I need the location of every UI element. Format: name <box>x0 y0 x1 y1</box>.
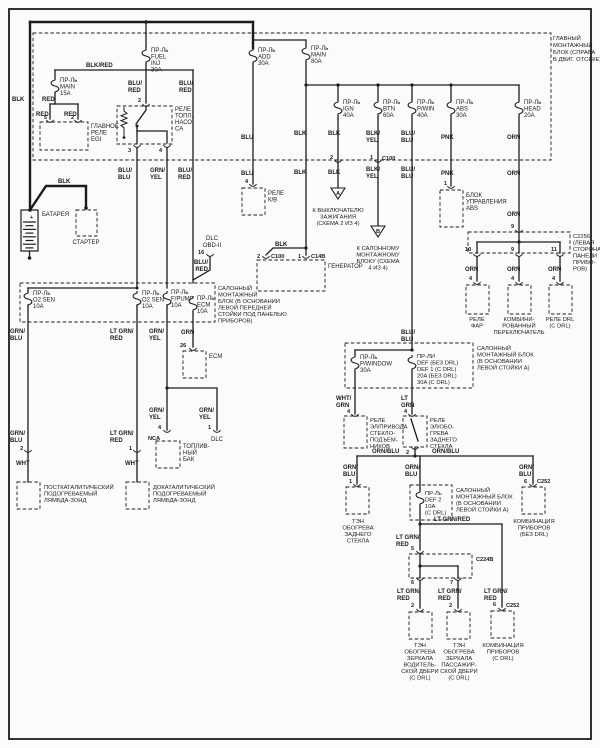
relay-switch-blade <box>411 419 418 441</box>
pin-label: 2 <box>138 98 141 104</box>
pin-label: 2 <box>406 450 409 456</box>
wire-label: BLK <box>275 242 288 248</box>
wire-label: LT GRN/ <box>110 431 134 437</box>
pin-label: 2 <box>20 446 23 452</box>
component-label: ТОПЛ. <box>175 114 193 120</box>
fuse-icon <box>515 100 523 116</box>
power-window-relay-circuit: WHT/ GRN 4 РЕЛЕ ЭЛ/ПРИВОДА СТЕКЛО- ПОДЪЕ… <box>336 371 408 450</box>
wire-label: BLK <box>58 179 71 185</box>
component-label: ЗАДНЕГО <box>430 438 457 444</box>
wire-label: BLU <box>343 472 355 478</box>
abs-unit-box <box>440 190 463 227</box>
component-label: ОБОГРЕВА <box>342 526 373 532</box>
component-label: РОВАННЫЙ <box>502 322 535 330</box>
connector-label: ПАНЕЛИ <box>573 254 597 260</box>
fuse-label: ПР-ЛИ <box>417 354 435 360</box>
connector-label: СТОРОНА <box>573 247 600 253</box>
component-label: ПАССАЖИР- <box>441 663 476 669</box>
cabin-fusebox-3: САЛОННЫЙ МОНТАЖНЫЙ БЛОК (В ОСНОВАНИИ ЛЕВ… <box>410 485 513 520</box>
pin-icon <box>515 254 522 256</box>
fuse-label: ABS <box>456 107 468 113</box>
fuse-label: ПР-Ль <box>171 290 188 296</box>
fuse-label: MAIN <box>60 85 75 91</box>
component-label: ГЕНЕРАТОР <box>328 264 363 270</box>
wire-label: ORN <box>507 212 520 218</box>
fuse-label: ПР-Ль <box>456 100 473 106</box>
pin-label: 11 <box>551 247 557 253</box>
connector-label: ПРИБО- <box>573 260 595 266</box>
component-label: ОБОГРЕВА <box>404 650 435 656</box>
fuse-icon <box>142 48 150 64</box>
cabin-fusebox1-label: МОНТАЖНЫЙ <box>218 291 258 299</box>
generator-box <box>257 260 325 291</box>
fuse-label: (С DRL) <box>425 511 446 517</box>
component-label: ЗЕРКАЛА <box>407 656 433 662</box>
cabin-fusebox1-label: ПРИБОРОВ) <box>218 319 253 325</box>
cabin-fusebox2-label: САЛОННЫЙ <box>477 344 511 352</box>
off-page-connector-letter: B <box>376 229 380 235</box>
wire-label: BLU <box>401 138 413 144</box>
pin-label: 6 <box>524 479 527 485</box>
wire-label: RED <box>195 267 208 273</box>
fuse-label: P/WINDOW <box>360 362 392 368</box>
pin-label: 2 <box>411 603 414 609</box>
rear-glass-heater-box <box>346 487 369 514</box>
fuse-label: O2 SEN <box>33 298 55 304</box>
fuse-label: 30A <box>456 113 467 119</box>
main-fusebox-label: В ДВИГ. ОТСЕКЕ) <box>553 57 600 63</box>
pin-icon <box>416 609 423 611</box>
wire-label: ORN/BLU <box>432 449 459 455</box>
pin-label: 1 <box>444 181 447 187</box>
pin-label: 1 <box>129 446 132 452</box>
fuse-label: P/WIN <box>417 107 434 113</box>
component-label: РЕЛЕ <box>91 131 107 137</box>
component-label: КОМБИНИ- <box>504 317 535 323</box>
fuse-label: O2 SEN <box>142 298 164 304</box>
pin-label: 4 <box>511 276 515 282</box>
component-label: РЕЛЕ <box>268 191 284 197</box>
component-label: КОМБИНАЦИЯ <box>513 519 554 525</box>
connector-label: (ЛЕВАЯ <box>573 241 594 247</box>
egi-relay-box <box>40 122 88 150</box>
component-label: ЗЕРКАЛА <box>446 656 472 662</box>
pin-label: 4 <box>469 276 473 282</box>
wire-label: WHT <box>16 461 30 467</box>
wire-label: BLU/ <box>401 330 415 336</box>
fuse-label: ПР-Ль <box>524 100 541 106</box>
abs-circuit: PNK PNK 1 БЛОК УПРАВЛЕНИЯ ABS <box>440 116 507 227</box>
fuse-label: 10A <box>425 504 435 510</box>
wire-label: YEL <box>149 336 161 342</box>
pin-icon <box>515 282 522 284</box>
pin-icon <box>133 145 140 147</box>
wire-label: BLK <box>294 170 307 176</box>
component-label: (С DRL) <box>492 656 513 662</box>
fuse-label: ADD <box>258 55 271 61</box>
wire-label: LT GRN/ <box>438 589 462 595</box>
pin-icon <box>556 254 563 256</box>
wire-label: RED <box>179 88 192 94</box>
fuse-label: DEF 1 (С DRL) <box>417 367 456 373</box>
wire-label: BLK/ <box>366 131 380 137</box>
fuse-label: 30A <box>360 368 371 374</box>
fuse-label: ПР-Ль <box>60 78 77 84</box>
wire-label: BLU <box>401 174 413 180</box>
headlight-relay-box <box>466 285 489 314</box>
pin-label: 26 <box>180 343 186 349</box>
component-label: ОБОГРЕВА <box>443 650 474 656</box>
component-label: ПРИБОРОВ <box>518 526 551 532</box>
component-label: OBD-II <box>203 243 222 249</box>
wire-label: YEL <box>366 174 378 180</box>
wire-label: RED <box>110 336 123 342</box>
pin-label: 4 <box>552 276 556 282</box>
combo-switch-box <box>508 285 531 314</box>
page-border <box>9 9 591 739</box>
wire-label: ORN/BLU <box>372 449 399 455</box>
note-label: К САЛОННОМУ <box>357 246 400 252</box>
fuse-label: INJ <box>151 61 160 67</box>
head-drl-circuit: ORN ORN ORN 9 C2256 (ЛЕВАЯ СТОРОНА ПАНЕЛ… <box>465 116 600 336</box>
starter-box <box>76 210 97 236</box>
connector-label: C252 <box>537 479 550 485</box>
wire-label: GRN <box>401 403 414 409</box>
pin-label: 4 <box>159 148 163 154</box>
wire-label: ORN/ <box>519 465 534 471</box>
cabin-fusebox2-label: (В ОСНОВАНИИ <box>477 359 522 365</box>
fuse-icon <box>447 100 455 116</box>
relay-switch-blade <box>136 106 146 124</box>
cabin-fusebox-2: САЛОННЫЙ МОНТАЖНЫЙ БЛОК (В ОСНОВАНИИ ЛЕВ… <box>345 343 534 388</box>
component-label: (С DRL) <box>549 324 570 330</box>
fuse-label: 30A <box>258 61 269 67</box>
component-label: НАСО- <box>175 120 194 126</box>
wire-label: BLK/RED <box>86 63 113 69</box>
pin-icon <box>262 256 269 258</box>
fuse-label: 30A (С DRL) <box>417 380 450 386</box>
pin-icon <box>163 145 170 147</box>
wire-label: GRN/ <box>149 408 164 414</box>
component-label: ГРЕВА <box>430 431 449 437</box>
wire-label: GRN/ <box>150 168 165 174</box>
off-page-connector-letter: A <box>336 191 340 197</box>
wire-label: YEL <box>199 415 211 421</box>
pin-label: 2 <box>71 115 74 121</box>
component-label: ПОДОГРЕВАЕМЫЙ <box>44 490 97 498</box>
cluster-no-drl-box <box>522 487 545 514</box>
fuse-label: 60A <box>383 113 394 119</box>
fuse-label: ПР-Ль <box>417 100 434 106</box>
cabin-fusebox1-label: СТОЙКИ ПОД ПАНЕЛЬЮ <box>218 310 287 318</box>
wire-label: BLU/ <box>401 131 415 137</box>
wire-label: YEL <box>150 175 162 181</box>
cabin-fusebox3-label: ЛЕВОЙ СТОЙКИ A) <box>456 506 509 514</box>
wire-label: BLU <box>241 171 253 177</box>
wire-label: RED <box>438 596 451 602</box>
fuse-label: 40A <box>417 113 428 119</box>
fuel-pump-relay-circuit: BLU/ RED BLU/ RED 2 РЕЛЕ ТОПЛ. НАСО- СА … <box>117 64 194 288</box>
cabin-fusebox1-label: ЛЕВОЙ ПЕРЕДНЕЙ <box>218 304 272 312</box>
component-label: ЗАДНЕГО <box>345 532 372 538</box>
pin-label: 3 <box>128 148 131 154</box>
note-label: 4 ИЗ 4) <box>368 266 387 272</box>
fuse-label: ПР-Ль <box>258 48 275 54</box>
cabin-fusebox3-label: (В ОСНОВАНИИ <box>456 501 501 507</box>
wire-label: ORN/ <box>405 465 420 471</box>
main-fusebox-label: БЛОК (СПРАВА <box>553 50 595 56</box>
pin-label: 9 <box>511 224 514 230</box>
component-label: СКОЙ ДВЕРИ <box>440 667 477 675</box>
connector-label: C2256 <box>573 234 590 240</box>
fuse-label: ПР-Ль <box>197 296 214 302</box>
pin-label: 2 <box>257 254 260 260</box>
component-label: ТОПЛИВ- <box>183 444 210 450</box>
wire-label: GRN/ <box>10 431 25 437</box>
component-label: РЕЛЕ DRL <box>546 317 575 323</box>
wire-label: PNK <box>441 135 454 141</box>
fuse-icon <box>351 355 359 371</box>
pw-relay-box <box>344 416 367 448</box>
btn-circuit: BLK/ YEL BLK/ YEL 1 C100 B К САЛОННОМУ М… <box>356 116 400 272</box>
c224b-mirror-heaters: C224B 6 7 LT GRN/ RED LT GRN/ RED 2 2 ТЭ… <box>397 554 493 682</box>
battery-plus-label: + <box>30 215 34 221</box>
lambda-pre-box <box>126 482 149 509</box>
fuse-label: ПР-Ль <box>360 355 377 361</box>
fuse-label: MAIN <box>311 53 326 59</box>
cabin-fusebox3-label: САЛОННЫЙ <box>456 486 490 494</box>
wire-label: BLU/ <box>194 260 208 266</box>
connector-label: C14B <box>311 254 325 260</box>
component-label: БАК <box>183 457 195 463</box>
wire-label: RED <box>397 596 410 602</box>
wire-label: BLU <box>10 336 22 342</box>
pin-label: 6 <box>411 580 414 586</box>
wire-label: YEL <box>149 415 161 421</box>
pin-label: 10 <box>465 247 471 253</box>
connector-label: C252 <box>506 603 519 609</box>
pin-label: 9 <box>511 247 514 253</box>
fuse-label: ПР-Ль <box>142 291 159 297</box>
fuse-icon <box>408 355 416 371</box>
battery-cells-icon <box>23 222 36 248</box>
fuse-label: 20A <box>524 113 535 119</box>
wire-label: WHT/ <box>336 396 352 402</box>
wire-label: BLK <box>328 131 341 137</box>
wire-label: WHT <box>125 461 139 467</box>
component-label: ТЭН <box>453 643 465 649</box>
component-label: ФАР <box>471 324 483 330</box>
wire-label: ORN <box>507 135 520 141</box>
fuse-label: DEF 2 <box>425 498 441 504</box>
pin-icon <box>454 609 461 611</box>
fuse-label: HEAD <box>524 107 541 113</box>
component-label: DLC <box>206 236 219 242</box>
component-label: РЕЛЕ <box>430 418 446 424</box>
fuse-icon <box>334 100 342 116</box>
fuse-label: ПР-Ль <box>425 491 442 497</box>
wire-label: BLU <box>401 337 413 343</box>
wire-label: LT GRN/ <box>397 589 421 595</box>
cabin-fusebox2-label: МОНТАЖНЫЙ БЛОК <box>477 351 534 359</box>
battery-starter: BLK + БАТАРЕЯ BLK СТАРТЕР <box>12 97 100 260</box>
fuse-label: 80A <box>311 59 322 65</box>
wire-label: BLU/ <box>128 81 142 87</box>
note-label: МОНТАЖНОМУ <box>356 253 400 259</box>
fuse-icon <box>51 78 59 94</box>
fuse-label: 40A <box>343 113 354 119</box>
pin-label: 1 <box>370 155 373 161</box>
cabin-fusebox3-label: МОНТАЖНЫЙ БЛОК <box>456 493 513 501</box>
component-label: УПРАВЛЕНИЯ <box>466 200 507 206</box>
component-label: РЕЛЕ <box>370 418 386 424</box>
wire-label: GRN/ <box>149 329 164 335</box>
component-label: DLC <box>211 437 224 443</box>
wire-label: ORN <box>465 267 478 273</box>
component-label: К/В <box>268 198 277 204</box>
component-label: ECM <box>209 354 222 360</box>
wire-label: BLK/ <box>366 167 380 173</box>
connector-label: РОВ) <box>573 267 587 273</box>
wire-label: BLU/ <box>118 168 132 174</box>
wire-label: RED <box>36 112 49 118</box>
wire-label: RED <box>128 88 141 94</box>
wire-label: LT <box>401 396 408 402</box>
dlc-obd2: DLC OBD-II 16 BLU/ RED <box>193 236 221 280</box>
cluster-drl-box <box>491 611 514 638</box>
component-label: ТЭН <box>414 643 426 649</box>
component-label: (БЕЗ DRL) <box>520 532 548 538</box>
fuel-tank-box <box>156 441 180 468</box>
wire-label: BLK <box>328 170 341 176</box>
cabin-fusebox1-label: БЛОК (В ОСНОВАНИИ <box>218 299 280 305</box>
component-label: ЛЯМБДА-ЗОНД <box>153 498 195 504</box>
fuse-icon <box>374 100 382 116</box>
component-label: ЭЛ/ПРИВОДА <box>370 425 408 431</box>
note-label: БЛОКУ (СХЕМА <box>356 259 399 265</box>
wire-label: BLU <box>519 472 531 478</box>
pin-label: 2 <box>330 155 333 161</box>
connector-label: C224B <box>476 557 493 563</box>
cabin-fusebox1-label: САЛОННЫЙ <box>218 284 252 292</box>
connector-label: C100 <box>382 156 395 162</box>
component-label: EGI <box>91 137 102 143</box>
wire-label: PNK <box>441 171 454 177</box>
pin-icon <box>206 254 213 256</box>
wire-label: BLU <box>405 472 417 478</box>
wire-label: BLK <box>294 131 307 137</box>
component-label: ЛЯМБДА-ЗОНД <box>44 498 86 504</box>
component-label: (С DRL) <box>409 676 430 682</box>
pin-label: 1 <box>208 425 211 431</box>
wire-label: BLU/ <box>179 81 193 87</box>
fuse-label: ПР-Ль <box>343 100 360 106</box>
lambda-post-box <box>17 482 40 509</box>
wire-label: LT GRN/ <box>484 589 508 595</box>
pin-label: 5 <box>411 546 414 552</box>
component-label: ПОДОГРЕВАЕМЫЙ <box>153 490 206 498</box>
wire-label: BLU/ <box>401 167 415 173</box>
relay-coil-icon <box>121 107 127 136</box>
fuse-icon <box>249 48 257 64</box>
component-label: БЛОК <box>466 193 483 199</box>
pin-icon <box>556 282 563 284</box>
wire-label: LT GRN/RED <box>434 517 471 523</box>
pin-label: 4 <box>245 179 249 185</box>
fuse-label: ПР-Ль <box>383 100 400 106</box>
fuse-icon <box>416 490 424 506</box>
pin-label: 1 <box>349 479 352 485</box>
component-label: РЕЛЕ <box>175 107 191 113</box>
component-label: ТЭН <box>352 519 364 525</box>
note-label: К ВЫКЛЮЧАТЕЛЮ <box>312 208 363 214</box>
fuse-label: 10A <box>171 303 182 309</box>
component-label: ЭЛ/ОБО- <box>430 425 454 431</box>
component-label: НЫЙ <box>183 449 197 457</box>
fuse-label: 15A <box>60 91 71 97</box>
wire-label: LT GRN/ <box>110 329 134 335</box>
fuse-label: FUEL <box>151 55 167 61</box>
fuse-label: 20A (БЕЗ DRL) <box>417 374 457 380</box>
component-label: ABS <box>466 206 478 212</box>
lambda-post-circuit: GRN/ BLU GRN/ BLU 2 WHT ПОСТКАТАЛИТИЧЕСК… <box>10 305 114 509</box>
wiring-diagram-page: ГЛАВНЫЙ МОНТАЖНЫЙ БЛОК (СПРАВА В ДВИГ. О… <box>0 0 600 748</box>
wire-label: LT GRN/ <box>396 535 420 541</box>
ign-circuit: BLK BLK 2 A К ВЫКЛЮЧАТЕЛЮ ЗАЖИГАНИЯ (СХЕ… <box>312 116 363 227</box>
pwin-feed-circuit: BLU/ BLU BLU/ BLU BLU/ BLU <box>401 116 415 350</box>
wire-label: ORN <box>507 267 520 273</box>
cabin-fusebox2-label: ЛЕВОЙ СТОЙКИ A) <box>477 364 530 372</box>
ecm-box <box>183 351 206 378</box>
note-label: ЗАЖИГАНИЯ <box>320 215 356 221</box>
wire-label: ORN/ <box>343 465 358 471</box>
pin-label: 16 <box>198 250 204 256</box>
main-fusebox-label: ГЛАВНЫЙ <box>553 34 581 42</box>
wire-label: ORN <box>507 171 520 177</box>
fuse-label: ПР-Ль <box>151 48 168 54</box>
fuse-label: ПР-Ль <box>33 291 50 297</box>
mirror-heater-driver-box <box>409 612 432 639</box>
component-label: РЕЛЕ <box>469 317 485 323</box>
wire-label: RED <box>42 97 55 103</box>
component-label: (С DRL) <box>448 676 469 682</box>
fuse-label: DEF (БЕЗ DRL) <box>417 361 458 367</box>
pin-label: 2 <box>449 603 452 609</box>
pin-icon <box>302 256 309 258</box>
fuse-icon <box>408 100 416 116</box>
component-label: ВОДИТЕЛЬ- <box>403 663 436 669</box>
wire-label: BLU <box>10 438 22 444</box>
ac-relay-box <box>242 188 265 215</box>
fuse-label: 10A <box>142 304 153 310</box>
wire-label: GRN/ <box>10 329 25 335</box>
fuse-label: IGN <box>343 107 354 113</box>
fuse-label: ECM <box>197 303 210 309</box>
pin-icon <box>473 254 480 256</box>
pin-label: 6 <box>493 602 496 608</box>
ac-relay-circuit: BLU BLU 4 РЕЛЕ К/В <box>241 64 284 215</box>
component-label: СТЕКЛА <box>347 539 370 545</box>
lambda-pre-circuit: LT GRN/ RED LT GRN/ RED 1 WHT ДОКАТАЛИТИ… <box>110 305 215 509</box>
pin-label: 4 <box>347 409 351 415</box>
fuse-label: BTN <box>383 107 395 113</box>
pin-icon <box>189 348 196 350</box>
fuse-icon <box>302 46 310 62</box>
pin-icon <box>416 551 423 553</box>
wire-label: ORN <box>548 267 561 273</box>
component-label: ГЛАВНОЕ <box>91 124 119 130</box>
pin-label: 4 <box>404 409 408 415</box>
